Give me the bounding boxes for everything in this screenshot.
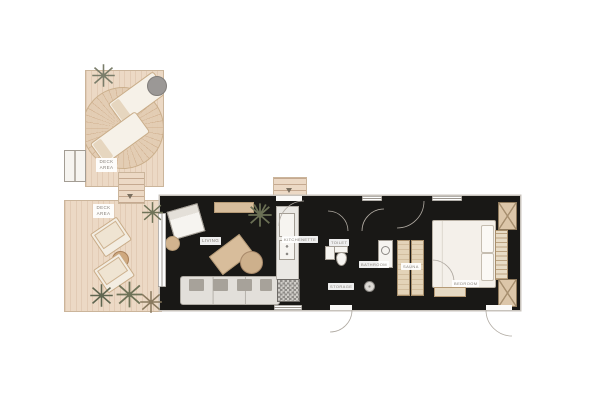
- sauna-label: SAUNA: [401, 263, 421, 270]
- bathroom-label: BATHROOM: [359, 261, 389, 268]
- door-swing-arcs: [0, 0, 600, 400]
- deck-lower-label: DECK AREA: [93, 204, 114, 218]
- plant-icon: [246, 201, 274, 229]
- plant-icon: [138, 289, 164, 315]
- plant-icon: [140, 200, 165, 225]
- bathroom-door-arc: [362, 209, 384, 231]
- plant-icon: [88, 282, 115, 309]
- bedroom-exterior-door-arc: [486, 310, 512, 336]
- entry-door-arc: [279, 201, 304, 226]
- sauna-door-arc: [432, 260, 454, 282]
- living-label: LIVING: [200, 237, 221, 245]
- plant-icon: [90, 62, 117, 89]
- kitchenette-label: KITCHENETTE: [282, 236, 318, 243]
- storage-label: STORAGE: [328, 283, 354, 290]
- storage-exterior-door-arc: [330, 310, 352, 332]
- bedroom-label: BEDROOM: [452, 280, 479, 287]
- floor-plan-canvas: DECK AREA DECK AREA LIVING: [0, 0, 600, 400]
- bedroom-door-arc: [397, 201, 424, 228]
- toilet-door-arc: [328, 211, 348, 231]
- toilet-label: TOILET: [329, 239, 349, 246]
- deck-upper-label: DECK AREA: [96, 158, 117, 172]
